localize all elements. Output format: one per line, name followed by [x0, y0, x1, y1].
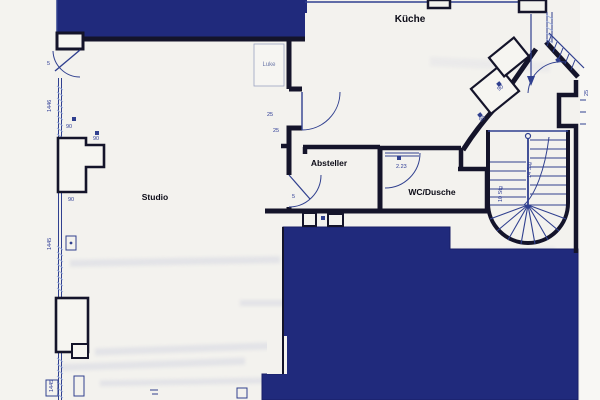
dim-kitchen-door-a: 25 — [267, 112, 273, 118]
dim-left-bottom: 1445 — [49, 380, 55, 392]
door-stub-a — [303, 213, 316, 226]
dim-storage-door: 5 — [292, 194, 295, 200]
dim-pillar-right: 90 — [93, 136, 99, 142]
studio-label: Studio — [142, 192, 168, 202]
dim-pillar-top: 90 — [66, 124, 72, 130]
roof-hatch: Luke — [254, 44, 284, 86]
dim-door-top-left: 5 — [47, 61, 50, 67]
dim-kitchen-door-b: 25 — [273, 128, 279, 134]
wall-pier-top-left — [57, 33, 83, 49]
bath-label: WC/Dusche — [408, 187, 456, 197]
pillar-block-notch — [72, 344, 88, 358]
floor-plan-scan: 14 Stg 10 Stg Luke Küche Studio Abstelle… — [0, 0, 600, 400]
bottom-masked-region — [262, 227, 578, 400]
stair-label-left: 10 Stg — [498, 186, 504, 202]
kitchen-label: Küche — [395, 14, 426, 25]
top-wall-stub — [428, 0, 450, 8]
stair-newel — [526, 134, 531, 139]
dim-left-mid: 1445 — [47, 238, 53, 250]
dim-right-edge: 25 — [584, 90, 590, 96]
dim-left-top: 1446 — [47, 100, 53, 112]
dim-pillar-bottom: 90 — [68, 197, 74, 203]
floor-plan-svg: 14 Stg 10 Stg Luke Küche Studio Abstelle… — [0, 0, 600, 400]
hatch-label: Luke — [262, 62, 276, 68]
storage-label: Absteller — [311, 158, 348, 168]
dim-bath-door: 2.23 — [396, 164, 407, 170]
door-stub-b — [328, 214, 343, 226]
stair-label-right: 14 Stg — [527, 162, 533, 178]
top-masked-region — [57, 0, 307, 37]
chimney-block — [519, 0, 546, 12]
